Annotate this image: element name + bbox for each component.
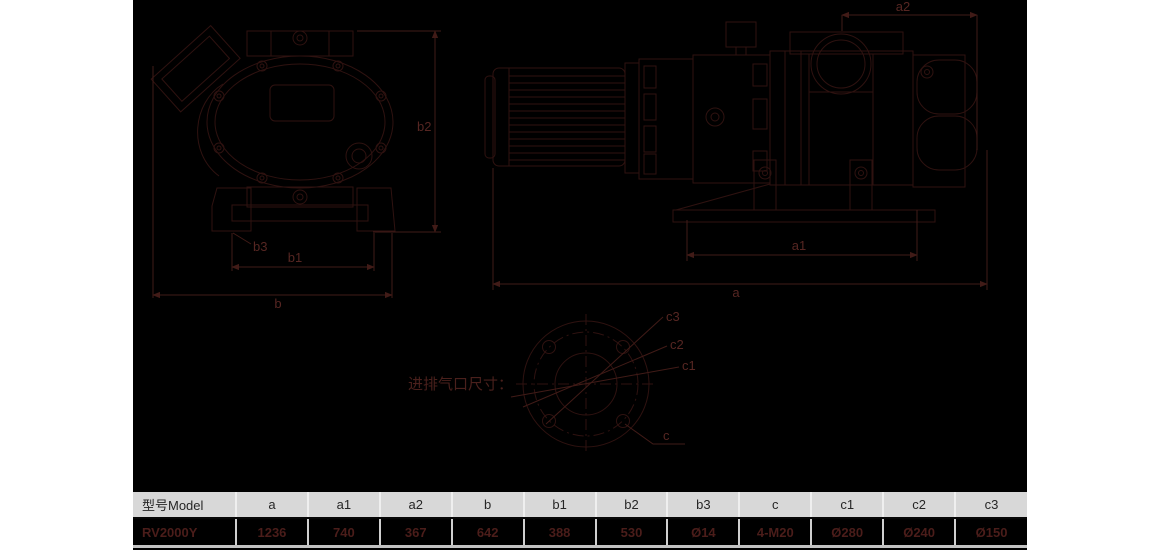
cell-c2: Ø240 (883, 518, 955, 547)
inspection-window (270, 85, 334, 121)
header-cell-a: a (236, 492, 308, 518)
drawing-canvas: b2 b3 b1 b (133, 0, 1027, 550)
dim-b3: b3 (233, 233, 267, 254)
technical-drawing: b2 b3 b1 b (133, 0, 1027, 492)
cell-c: 4-M20 (739, 518, 811, 547)
dim-label-c3: c3 (666, 309, 680, 324)
sight-glass (346, 143, 372, 169)
cell-c1: Ø280 (811, 518, 883, 547)
header-cell-b1: b1 (524, 492, 596, 518)
header-cell-a1: a1 (308, 492, 380, 518)
header-cell-b2: b2 (596, 492, 668, 518)
cell-a2: 367 (380, 518, 452, 547)
cell-c3: Ø150 (955, 518, 1027, 547)
header-cell-c3: c3 (955, 492, 1027, 518)
header-cell-b: b (452, 492, 524, 518)
dim-label-c2: c2 (670, 337, 684, 352)
dim-label-a: a (732, 285, 740, 300)
flange-view: c3 c2 c1 c 进排气口尺寸： (408, 309, 696, 454)
dim-label-b: b (274, 296, 281, 311)
flange-leaders (511, 317, 685, 444)
dim-b2: b2 (357, 31, 441, 232)
cell-b: 642 (452, 518, 524, 547)
dimension-table: 型号Model a a1 a2 b b1 b2 b3 c c1 c2 c3 RV… (133, 492, 1027, 548)
cell-a: 1236 (236, 518, 308, 547)
motor-fins (509, 76, 625, 160)
header-cell-b3: b3 (667, 492, 739, 518)
body-bolts (214, 61, 386, 183)
angled-housing (151, 26, 240, 112)
coupling-housing (639, 59, 693, 179)
dim-label-a1: a1 (792, 238, 806, 253)
header-cell-c2: c2 (883, 492, 955, 518)
header-cell-model: 型号Model (133, 492, 236, 518)
intake-port (811, 34, 871, 94)
header-cell-a2: a2 (380, 492, 452, 518)
spec-table: 型号Model a a1 a2 b b1 b2 b3 c c1 c2 c3 RV… (133, 492, 1027, 548)
dim-label-b1: b1 (288, 250, 302, 265)
cell-a1: 740 (308, 518, 380, 547)
dim-a1: a1 (687, 210, 917, 261)
dim-label-c: c (663, 428, 670, 443)
cell-b2: 530 (596, 518, 668, 547)
dim-b: b (153, 66, 392, 311)
cell-b1: 388 (524, 518, 596, 547)
dim-label-a2: a2 (896, 0, 910, 14)
dim-label-c1: c1 (682, 358, 696, 373)
cell-b3: Ø14 (667, 518, 739, 547)
header-cell-c: c (739, 492, 811, 518)
table-data-row: RV2000Y 1236 740 367 642 388 530 Ø14 4-M… (133, 518, 1027, 547)
dim-label-b3: b3 (253, 239, 267, 254)
header-cell-c1: c1 (811, 492, 883, 518)
base-plate (673, 210, 935, 222)
dim-label-b2: b2 (417, 119, 431, 134)
side-view: a2 a1 a (485, 0, 987, 300)
table-header-row: 型号Model a a1 a2 b b1 b2 b3 c c1 c2 c3 (133, 492, 1027, 518)
cell-model: RV2000Y (133, 518, 236, 547)
port-size-caption: 进排气口尺寸： (408, 376, 513, 393)
front-view: b2 b3 b1 b (151, 26, 441, 311)
pump-body (770, 51, 913, 185)
